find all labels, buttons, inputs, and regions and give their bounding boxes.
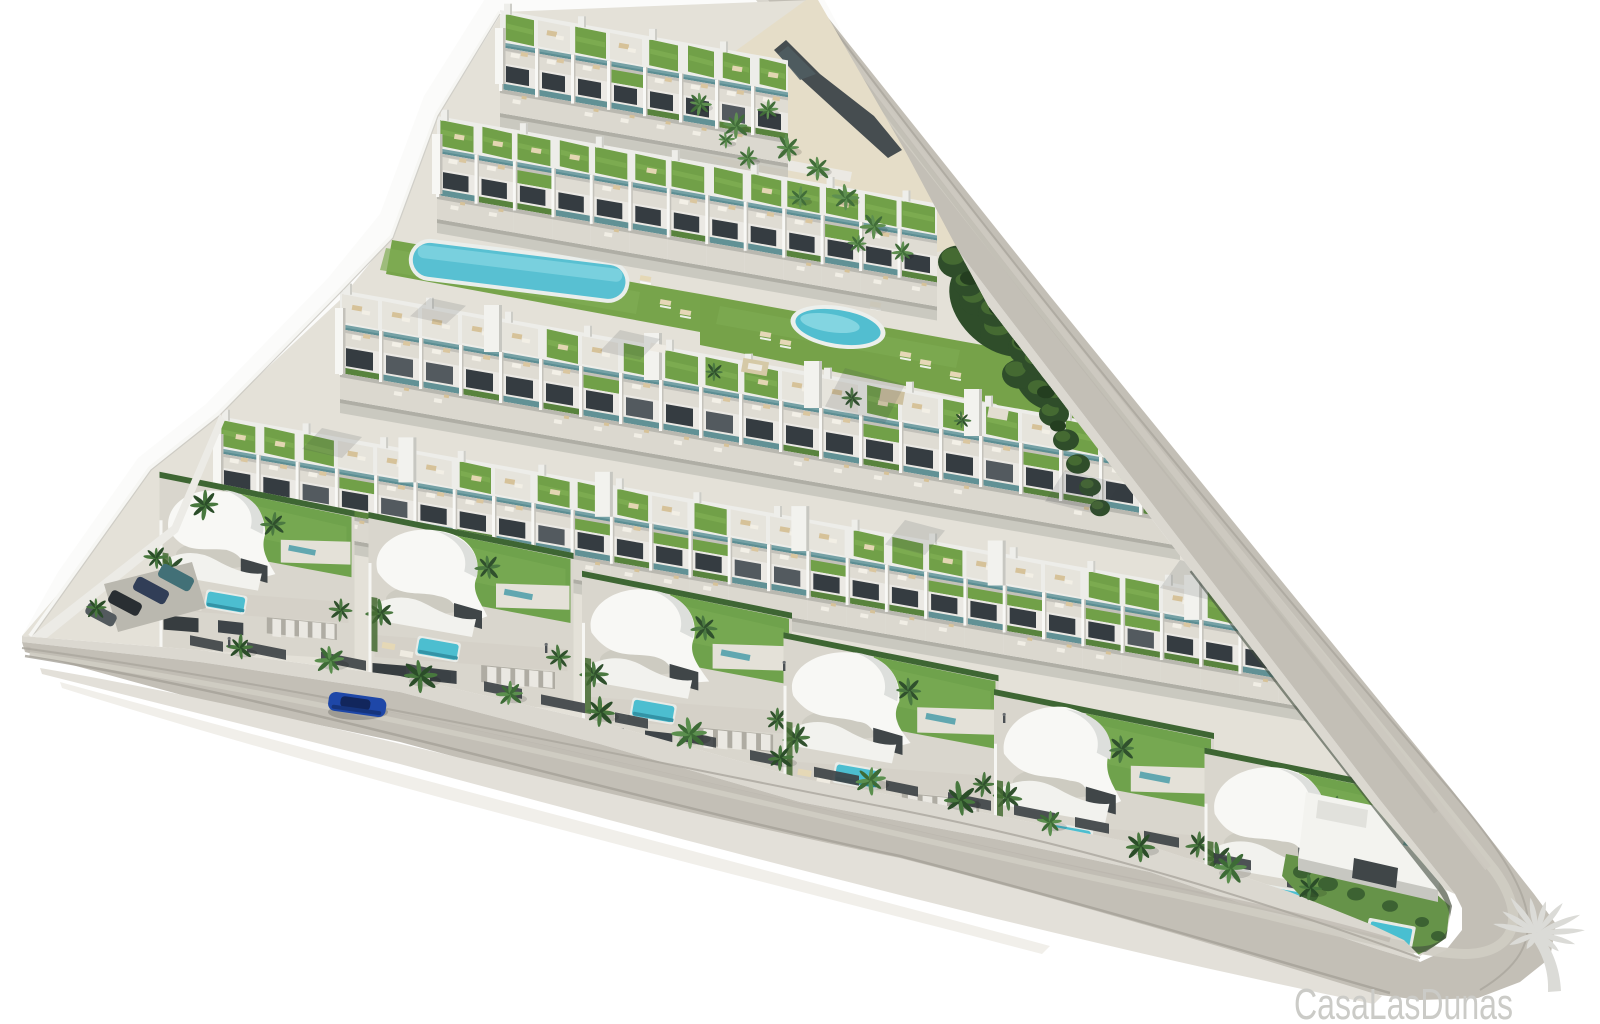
svg-text:CasaLasDunas: CasaLasDunas bbox=[1294, 980, 1513, 1024]
